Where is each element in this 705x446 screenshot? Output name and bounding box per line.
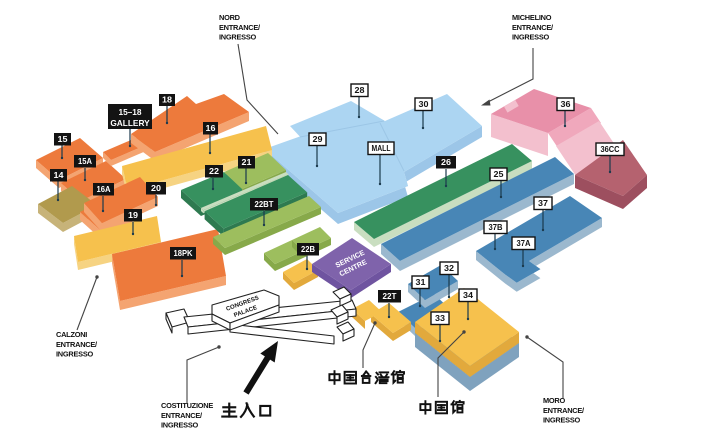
svg-text:37: 37 — [538, 198, 548, 208]
svg-text:ENTRANCE/: ENTRANCE/ — [161, 411, 202, 420]
svg-text:INGRESSO: INGRESSO — [219, 33, 257, 42]
svg-text:CALZONI: CALZONI — [56, 330, 87, 339]
svg-text:36: 36 — [561, 99, 571, 109]
svg-text:28: 28 — [355, 85, 365, 95]
svg-text:34: 34 — [463, 290, 473, 300]
svg-text:ENTRANCE/: ENTRANCE/ — [219, 23, 260, 32]
svg-text:NORD: NORD — [219, 13, 241, 22]
svg-text:20: 20 — [151, 183, 161, 193]
svg-text:22: 22 — [209, 166, 219, 176]
svg-text:MICHELINO: MICHELINO — [512, 13, 552, 22]
svg-text:16A: 16A — [97, 184, 111, 194]
svg-text:37A: 37A — [517, 238, 531, 248]
svg-text:ENTRANCE/: ENTRANCE/ — [543, 406, 584, 415]
svg-text:14: 14 — [54, 170, 64, 180]
svg-text:32: 32 — [444, 263, 454, 273]
svg-text:15–18: 15–18 — [118, 107, 141, 117]
svg-text:21: 21 — [242, 157, 252, 167]
svg-text:19: 19 — [128, 210, 138, 220]
svg-text:30: 30 — [419, 99, 429, 109]
svg-text:MALL: MALL — [372, 143, 391, 153]
svg-text:15A: 15A — [78, 156, 92, 166]
svg-text:INGRESSO: INGRESSO — [161, 421, 199, 430]
svg-text:GALLERY: GALLERY — [110, 118, 150, 128]
svg-text:INGRESSO: INGRESSO — [56, 350, 94, 359]
svg-text:MORO: MORO — [543, 396, 565, 405]
svg-text:22BT: 22BT — [255, 199, 274, 209]
svg-text:22B: 22B — [301, 244, 315, 254]
svg-text:22T: 22T — [383, 291, 397, 301]
svg-text:15: 15 — [58, 134, 68, 144]
svg-text:ENTRANCE/: ENTRANCE/ — [512, 23, 553, 32]
svg-text:37B: 37B — [489, 222, 503, 232]
svg-text:ENTRANCE/: ENTRANCE/ — [56, 340, 97, 349]
svg-text:33: 33 — [435, 313, 445, 323]
svg-text:36CC: 36CC — [601, 144, 620, 154]
svg-text:26: 26 — [441, 157, 451, 167]
svg-text:31: 31 — [416, 277, 426, 287]
svg-text:18: 18 — [162, 95, 172, 105]
svg-text:INGRESSO: INGRESSO — [543, 416, 581, 425]
svg-text:25: 25 — [494, 169, 504, 179]
svg-text:18PK: 18PK — [174, 248, 193, 258]
svg-text:INGRESSO: INGRESSO — [512, 33, 550, 42]
svg-text:29: 29 — [313, 134, 323, 144]
svg-text:16: 16 — [206, 123, 216, 133]
